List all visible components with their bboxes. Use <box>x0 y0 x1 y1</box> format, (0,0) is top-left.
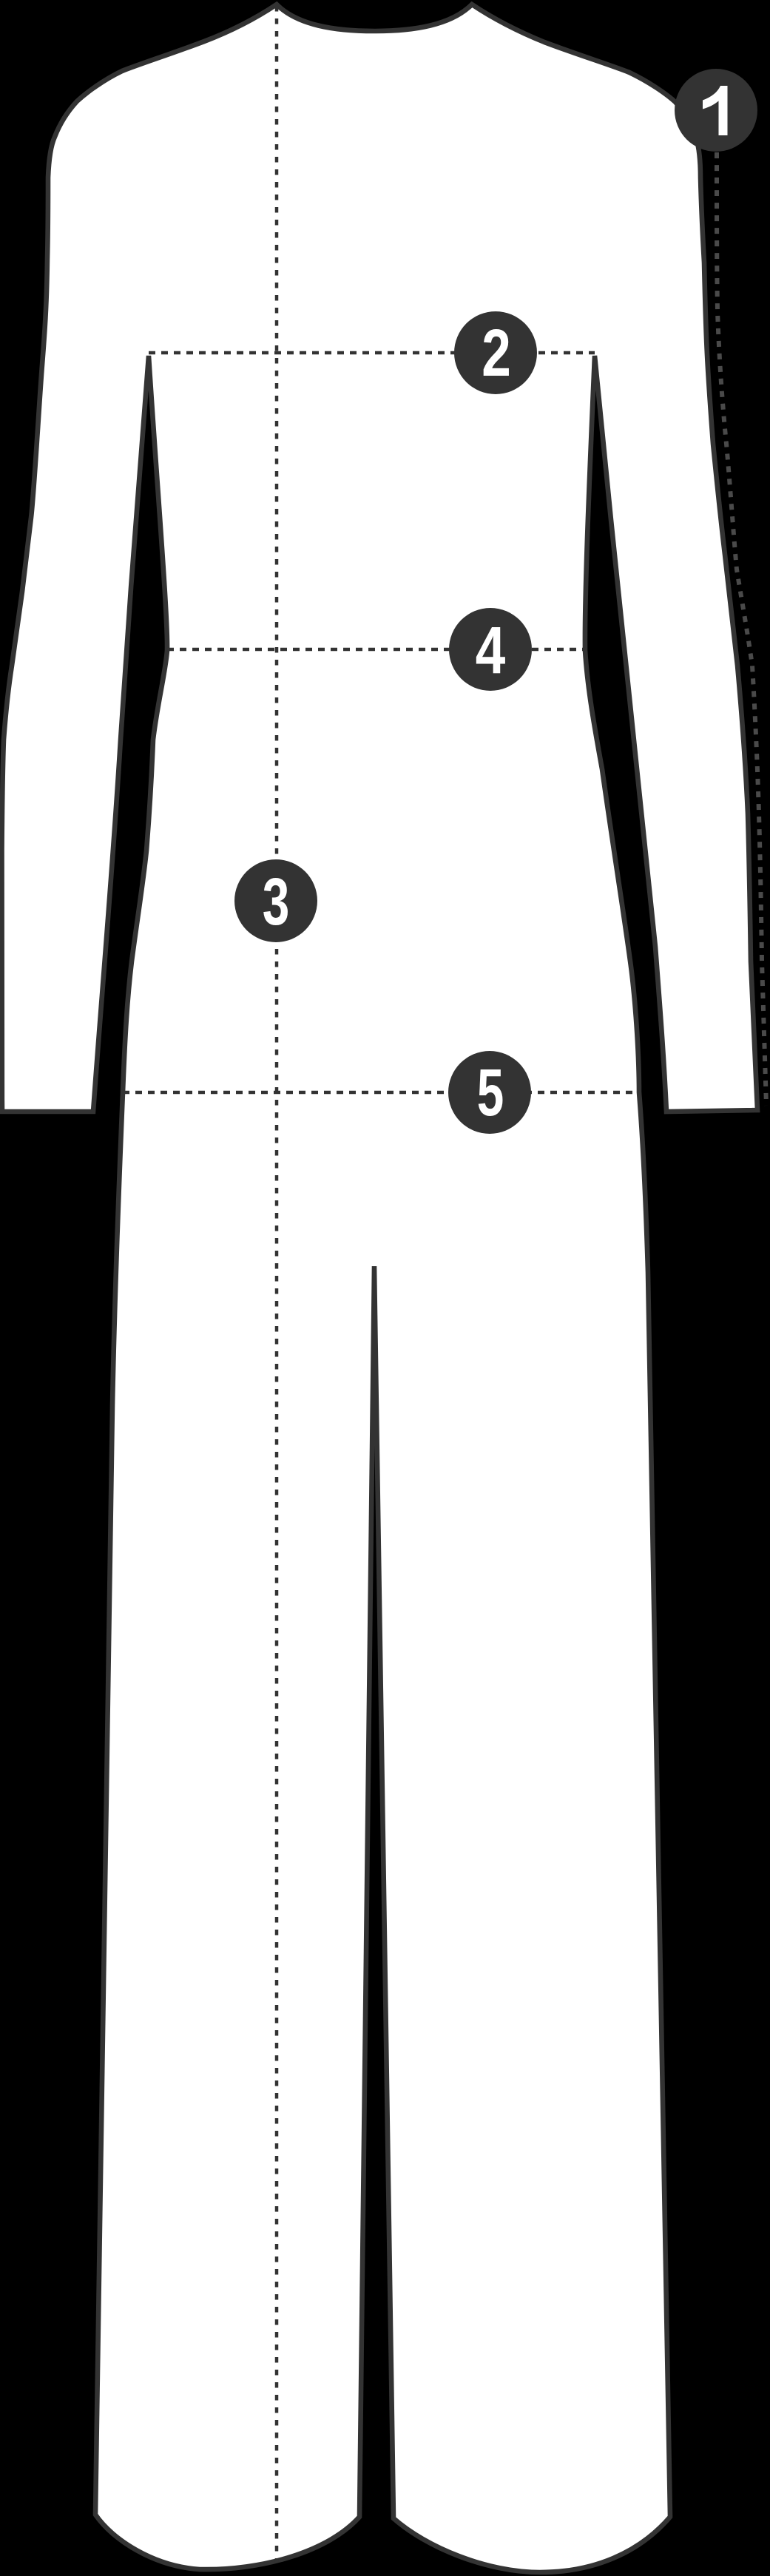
svg-text:4: 4 <box>476 614 506 688</box>
svg-text:5: 5 <box>477 1055 504 1130</box>
svg-text:3: 3 <box>263 865 290 939</box>
svg-text:2: 2 <box>482 317 511 391</box>
